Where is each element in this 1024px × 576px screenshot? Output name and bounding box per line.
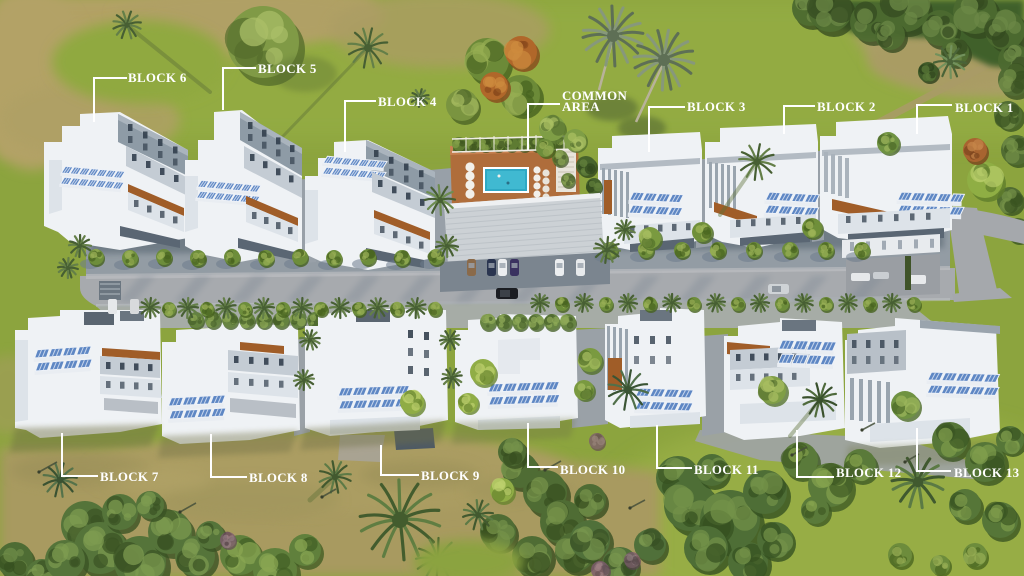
svg-text:BLOCK 13: BLOCK 13 xyxy=(954,466,1019,480)
svg-text:BLOCK 4: BLOCK 4 xyxy=(378,95,437,109)
svg-text:BLOCK 2: BLOCK 2 xyxy=(817,100,876,114)
svg-text:BLOCK 11: BLOCK 11 xyxy=(694,463,759,477)
svg-text:BLOCK 9: BLOCK 9 xyxy=(421,469,480,483)
svg-text:BLOCK 1: BLOCK 1 xyxy=(955,101,1014,115)
svg-text:AREA: AREA xyxy=(562,100,600,114)
svg-text:BLOCK 5: BLOCK 5 xyxy=(258,62,317,76)
svg-text:BLOCK 6: BLOCK 6 xyxy=(128,71,187,85)
svg-text:BLOCK 7: BLOCK 7 xyxy=(100,470,159,484)
svg-text:BLOCK 3: BLOCK 3 xyxy=(687,100,746,114)
svg-text:BLOCK 12: BLOCK 12 xyxy=(836,466,901,480)
svg-text:BLOCK 10: BLOCK 10 xyxy=(560,463,625,477)
svg-text:BLOCK 8: BLOCK 8 xyxy=(249,471,308,485)
